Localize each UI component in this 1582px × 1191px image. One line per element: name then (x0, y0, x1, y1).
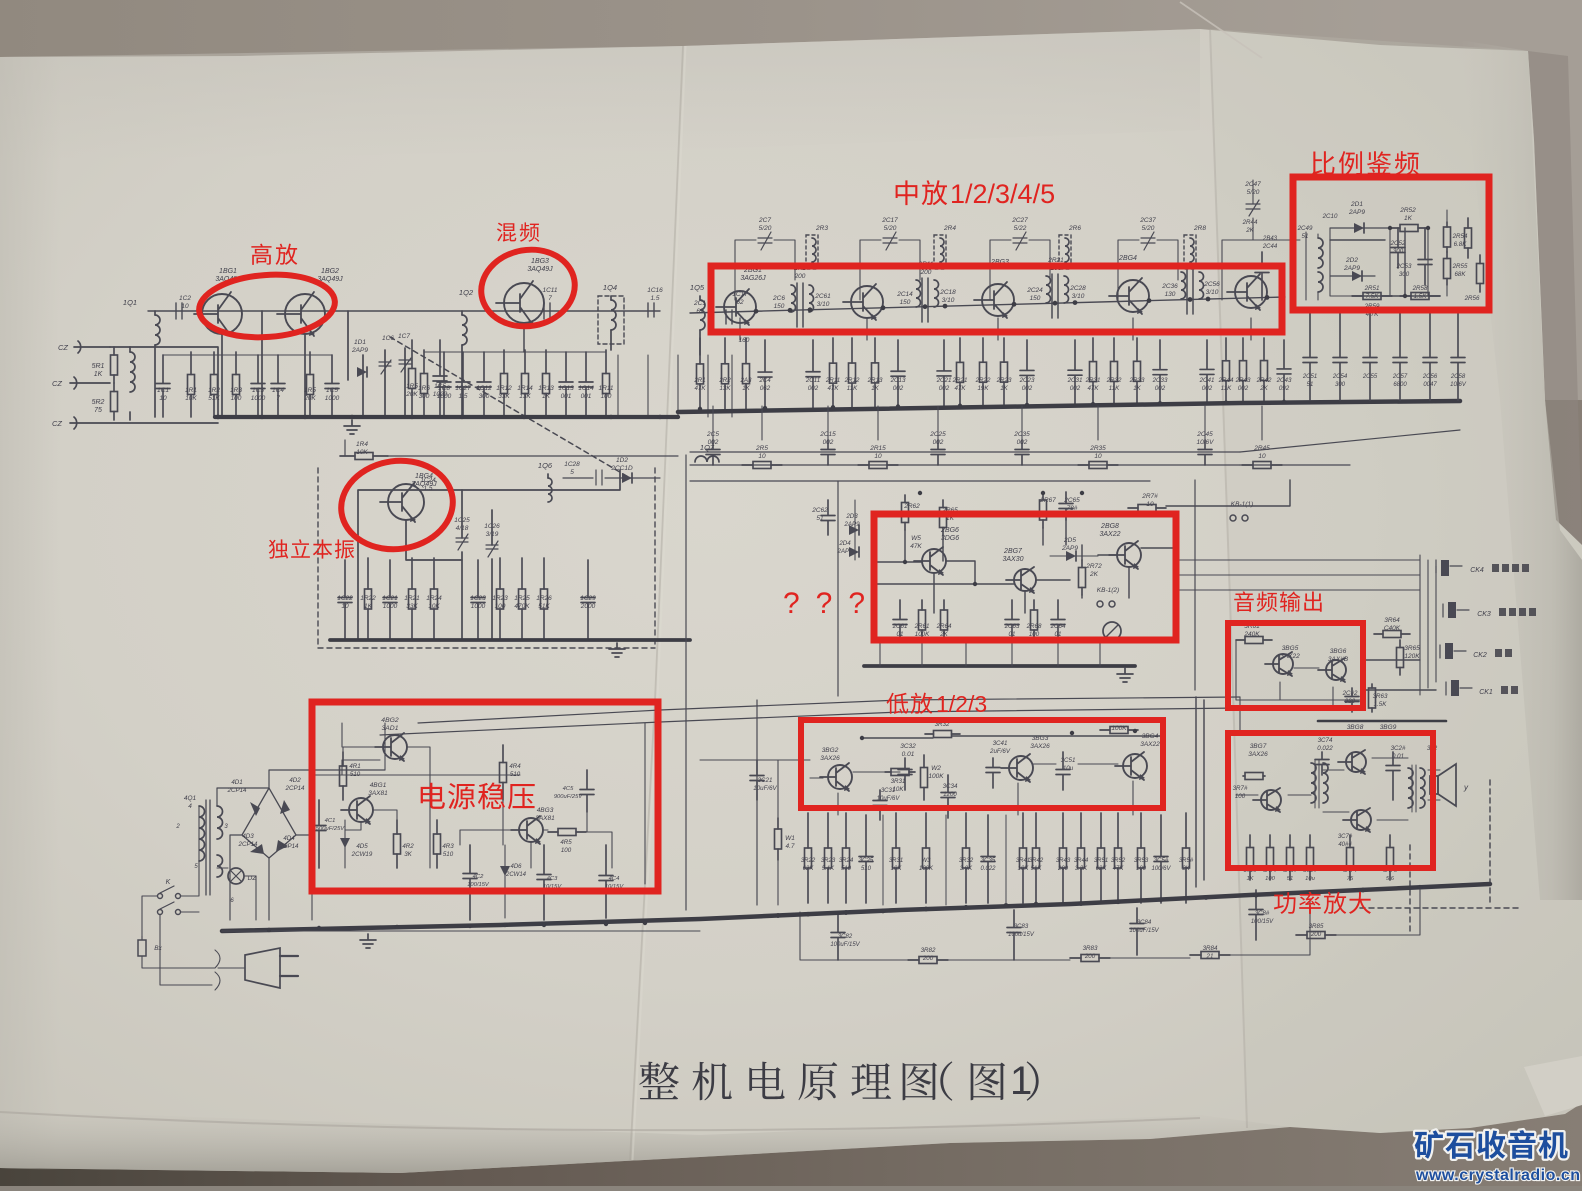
svg-text:10K: 10K (185, 395, 197, 402)
svg-text:001: 001 (581, 393, 592, 400)
svg-text:2C61: 2C61 (892, 623, 908, 630)
svg-text:510: 510 (443, 851, 454, 858)
svg-text:200: 200 (920, 269, 932, 276)
svg-text:1BG4: 1BG4 (415, 473, 433, 480)
svg-text:510: 510 (350, 771, 361, 778)
svg-text:3AX22: 3AX22 (1099, 531, 1120, 538)
svg-text:3BG7: 3BG7 (1250, 743, 1267, 750)
svg-text:001: 001 (561, 393, 572, 400)
svg-text:2CP14: 2CP14 (238, 841, 258, 848)
svg-text:3.9K: 3.9K (960, 866, 973, 872)
svg-text:2R61: 2R61 (914, 623, 930, 630)
svg-text:2R32: 2R32 (1106, 377, 1122, 384)
svg-text:3/10: 3/10 (1072, 293, 1085, 300)
svg-text:3R64: 3R64 (1384, 617, 1400, 624)
svg-text:4D4: 4D4 (283, 835, 295, 842)
svg-text:2R5: 2R5 (755, 445, 768, 452)
svg-text:2C27: 2C27 (1011, 217, 1028, 224)
svg-text:W2: W2 (931, 765, 941, 772)
svg-text:3C74: 3C74 (1318, 737, 1333, 744)
svg-text:0.022: 0.022 (980, 866, 996, 872)
svg-text:1R5: 1R5 (406, 383, 418, 390)
svg-text:10K: 10K (1018, 866, 1030, 872)
svg-text:5: 5 (570, 469, 574, 476)
svg-text:100/15V: 100/15V (1251, 919, 1274, 925)
svg-text:2K: 2K (1181, 866, 1190, 872)
svg-text:11K: 11K (1109, 385, 1120, 392)
svg-text:002: 002 (1022, 385, 1033, 392)
svg-text:1/2/3/4/5: 1/2/3/4/5 (950, 179, 1055, 209)
svg-text:47K: 47K (694, 385, 706, 392)
svg-text:10/6V: 10/6V (1450, 382, 1467, 388)
svg-text:2AP9: 2AP9 (351, 347, 368, 354)
svg-text:3R51: 3R51 (1094, 858, 1108, 864)
svg-text:1C8: 1C8 (438, 385, 450, 392)
svg-text:W1: W1 (785, 835, 795, 842)
svg-text:1C13: 1C13 (558, 385, 574, 392)
svg-text:1C21: 1C21 (382, 595, 398, 602)
svg-text:2R1: 2R1 (693, 377, 705, 384)
svg-text:3AX30: 3AX30 (1002, 556, 1023, 563)
svg-text:002: 002 (1238, 385, 1249, 392)
svg-text:092: 092 (1279, 385, 1290, 392)
svg-text:100K: 100K (928, 773, 944, 780)
svg-text:1C4: 1C4 (272, 387, 284, 394)
svg-text:3.3K: 3.3K (1075, 866, 1088, 872)
svg-text:1: 1 (1010, 1059, 1032, 1103)
svg-text:1R2: 1R2 (208, 387, 220, 394)
svg-text:1/2/3: 1/2/3 (936, 691, 987, 717)
svg-text:4R2: 4R2 (402, 843, 414, 850)
svg-text:10: 10 (758, 453, 766, 460)
svg-text:3C32: 3C32 (900, 743, 916, 750)
svg-text:2R58: 2R58 (1412, 285, 1428, 292)
svg-text:4BG2: 4BG2 (381, 717, 399, 724)
svg-text:2R52: 2R52 (1399, 207, 1416, 214)
svg-text:3BG9: 3BG9 (1380, 724, 1397, 731)
svg-text:5.6: 5.6 (1386, 876, 1395, 882)
svg-text:4BG1: 4BG1 (370, 782, 387, 789)
svg-text:002: 002 (1202, 385, 1213, 392)
svg-text:100: 100 (495, 603, 506, 610)
svg-text:3R53: 3R53 (1134, 858, 1149, 864)
svg-text:002: 002 (808, 385, 819, 392)
svg-text:3C34: 3C34 (943, 783, 958, 790)
svg-text:4BG3: 4BG3 (537, 807, 554, 814)
svg-text:2C58: 2C58 (1450, 374, 1466, 380)
svg-text:4: 4 (188, 803, 192, 810)
svg-text:10u: 10u (1063, 765, 1074, 772)
svg-text:2C13: 2C13 (890, 377, 906, 384)
svg-text:2C44: 2C44 (1262, 244, 1278, 250)
svg-text:CK1: CK1 (1479, 689, 1493, 696)
svg-text:2CW19: 2CW19 (351, 851, 373, 858)
svg-text:2R21: 2R21 (952, 377, 968, 384)
svg-text:47K: 47K (910, 543, 922, 550)
svg-text:4.7: 4.7 (785, 843, 794, 850)
svg-text:13K: 13K (519, 393, 531, 400)
svg-text:4C5: 4C5 (563, 786, 574, 792)
svg-text:3BG6: 3BG6 (1330, 648, 1347, 655)
svg-text:2C57: 2C57 (1392, 374, 1408, 380)
svg-text:1K: 1K (1000, 385, 1008, 392)
svg-text:100uF/15V: 100uF/15V (830, 942, 860, 948)
svg-text:300: 300 (1335, 382, 1346, 388)
svg-text:2C41: 2C41 (1199, 377, 1215, 384)
svg-text:2C1: 2C1 (693, 300, 706, 307)
svg-text:2R2: 2R2 (718, 377, 731, 384)
svg-text:2R4: 2R4 (943, 225, 956, 232)
svg-text:2R11: 2R11 (825, 377, 840, 384)
svg-text:4C1: 4C1 (325, 818, 336, 824)
svg-text:2R62: 2R62 (903, 503, 920, 510)
svg-text:CK4: CK4 (1470, 567, 1484, 574)
svg-text:10K: 10K (891, 866, 903, 872)
svg-text:3R83: 3R83 (1083, 945, 1098, 952)
svg-text:1R24: 1R24 (426, 595, 442, 602)
svg-text:5R2: 5R2 (92, 399, 105, 406)
svg-text:3R43: 3R43 (1056, 858, 1071, 864)
svg-text:2R44: 2R44 (1218, 377, 1234, 384)
svg-text:3BG2: 3BG2 (822, 747, 839, 754)
svg-text:100: 100 (1136, 866, 1147, 872)
svg-text:2R33: 2R33 (1129, 377, 1145, 384)
svg-text:4R4: 4R4 (509, 763, 521, 770)
svg-text:1R11: 1R11 (598, 385, 613, 392)
svg-text:20K: 20K (303, 395, 316, 402)
svg-text:2R44: 2R44 (1242, 219, 1258, 226)
svg-text:33K: 33K (406, 603, 418, 610)
svg-text:10: 10 (159, 395, 167, 402)
svg-text:0.01: 0.01 (902, 751, 915, 758)
svg-text:1D2: 1D2 (616, 457, 628, 464)
svg-text:2C56: 2C56 (1422, 374, 1438, 380)
svg-text:2R72: 2R72 (1085, 563, 1102, 570)
svg-text:CK3: CK3 (1477, 611, 1491, 618)
svg-text:3R32: 3R32 (959, 858, 974, 864)
svg-text:2: 2 (175, 824, 180, 830)
svg-text:1Q4: 1Q4 (603, 283, 617, 292)
svg-text:2C43: 2C43 (1276, 377, 1292, 384)
svg-text:2D1: 2D1 (1350, 201, 1363, 208)
svg-text:200: 200 (1057, 866, 1069, 872)
svg-text:3C31: 3C31 (881, 788, 895, 794)
svg-text:100: 100 (1235, 793, 1246, 800)
svg-text:3AX26: 3AX26 (1030, 743, 1050, 750)
svg-text:2C18: 2C18 (939, 289, 956, 296)
svg-text:2R7#: 2R7# (1141, 493, 1158, 500)
svg-text:2C62: 2C62 (811, 507, 828, 514)
svg-text:1BG1: 1BG1 (219, 268, 237, 275)
svg-text:3/10: 3/10 (817, 301, 830, 308)
svg-text:2K: 2K (1089, 571, 1099, 578)
svg-text:2C6: 2C6 (772, 295, 785, 302)
svg-text:2R15: 2R15 (869, 445, 886, 452)
svg-text:2C10: 2C10 (1322, 213, 1338, 220)
svg-text:51K: 51K (1031, 866, 1043, 872)
svg-text:150: 150 (900, 299, 911, 306)
svg-text:3R52: 3R52 (1111, 858, 1126, 864)
svg-text:4D5: 4D5 (356, 843, 368, 850)
svg-text:1D1: 1D1 (354, 339, 366, 346)
svg-text:062: 062 (760, 385, 771, 392)
svg-text:2C23: 2C23 (1019, 377, 1035, 384)
svg-text:1R26: 1R26 (536, 595, 552, 602)
svg-text:10: 10 (341, 603, 349, 610)
svg-text:3/10: 3/10 (1206, 289, 1219, 296)
svg-text:3R85: 3R85 (1309, 923, 1324, 930)
svg-text:CZ: CZ (52, 419, 62, 428)
svg-text:1Q6: 1Q6 (538, 461, 553, 470)
svg-text:1C16: 1C16 (647, 287, 663, 294)
svg-text:10: 10 (874, 453, 882, 460)
svg-text:100: 100 (601, 393, 612, 400)
svg-text:2C36: 2C36 (1161, 283, 1178, 290)
svg-text:CK2: CK2 (1473, 652, 1487, 659)
svg-text:300: 300 (479, 393, 490, 400)
svg-text:150: 150 (774, 303, 785, 310)
svg-text:150: 150 (1030, 295, 1041, 302)
svg-text:3C2#: 3C2# (1391, 745, 1406, 752)
svg-text:1R25: 1R25 (514, 595, 530, 602)
svg-text:1.5: 1.5 (650, 295, 659, 302)
svg-text:3R31: 3R31 (891, 778, 906, 785)
svg-text:2R42: 2R42 (1256, 377, 1272, 384)
svg-text:2000: 2000 (580, 603, 596, 610)
svg-text:1K: 1K (94, 371, 103, 378)
svg-text:2D2: 2D2 (1345, 257, 1358, 264)
svg-text:3R22: 3R22 (801, 858, 816, 864)
svg-text:2D5: 2D5 (1063, 537, 1076, 544)
svg-text:2D3: 2D3 (845, 513, 858, 520)
svg-text:1000: 1000 (437, 393, 452, 400)
svg-text:3R7#: 3R7# (1233, 785, 1248, 792)
svg-text:1R23: 1R23 (492, 595, 508, 602)
svg-text:1K: 1K (1133, 385, 1141, 392)
svg-text:2C17: 2C17 (881, 217, 898, 224)
svg-text:3C35: 3C35 (981, 858, 996, 864)
svg-text:1C2: 1C2 (179, 295, 191, 302)
svg-text:300: 300 (419, 393, 430, 400)
svg-text:1R13: 1R13 (538, 385, 554, 392)
svg-text:3R65: 3R65 (1404, 645, 1420, 652)
svg-text:11K: 11K (1221, 385, 1232, 392)
svg-text:2AP9: 2AP9 (1348, 209, 1365, 216)
svg-text:3R24: 3R24 (839, 858, 854, 864)
svg-text:5/20: 5/20 (1142, 225, 1155, 232)
svg-text:47K: 47K (827, 385, 839, 392)
svg-text:1Q5: 1Q5 (690, 283, 705, 292)
svg-text:2C49: 2C49 (1297, 225, 1313, 232)
svg-text:1K: 1K (542, 393, 551, 400)
svg-text:100/6V: 100/6V (1151, 866, 1171, 872)
svg-text:1BG2: 1BG2 (321, 268, 339, 275)
svg-text:1R6: 1R6 (418, 385, 430, 392)
svg-text:2C53: 2C53 (1396, 263, 1412, 270)
svg-text:10: 10 (1258, 453, 1266, 460)
svg-text:1K: 1K (1404, 215, 1413, 222)
svg-text:0047: 0047 (1423, 382, 1437, 388)
svg-text:2R51: 2R51 (1364, 285, 1380, 292)
svg-text:1000: 1000 (325, 395, 340, 402)
svg-text:51: 51 (1287, 876, 1293, 882)
svg-text:2C14: 2C14 (896, 291, 913, 298)
svg-text:510: 510 (841, 866, 852, 872)
svg-text:100: 100 (1265, 876, 1275, 882)
svg-text:3AG26J: 3AG26J (740, 275, 766, 282)
svg-text:4R5: 4R5 (560, 839, 572, 846)
svg-text:100: 100 (231, 395, 242, 402)
svg-text:3AD1: 3AD1 (381, 725, 398, 732)
svg-text:13K: 13K (719, 385, 731, 392)
svg-text:1R12: 1R12 (496, 385, 512, 392)
svg-text:100K: 100K (919, 866, 934, 872)
svg-text:www.crystalradio.cn: www.crystalradio.cn (1415, 1167, 1581, 1184)
svg-text:47K: 47K (1087, 385, 1099, 392)
svg-text:2C33: 2C33 (1152, 377, 1168, 384)
svg-text:1K: 1K (871, 385, 879, 392)
svg-text:2CW14: 2CW14 (505, 872, 527, 878)
svg-text:2R3: 2R3 (815, 225, 828, 232)
svg-text:2D4: 2D4 (838, 540, 851, 547)
svg-text:19K: 19K (977, 385, 989, 392)
svg-text:KB-1(2): KB-1(2) (1097, 587, 1119, 594)
svg-text:75: 75 (94, 407, 102, 414)
svg-text:0.022: 0.022 (1317, 745, 1333, 752)
svg-text:2R31: 2R31 (1085, 377, 1101, 384)
svg-text:3/10: 3/10 (942, 297, 955, 304)
svg-text:3R31: 3R31 (889, 858, 903, 864)
svg-text:2C51: 2C51 (1302, 374, 1317, 380)
svg-text:2CP14: 2CP14 (279, 843, 299, 850)
svg-text:5/20: 5/20 (759, 225, 772, 232)
svg-text:2AP9: 2AP9 (1343, 265, 1360, 272)
svg-text:3R82: 3R82 (921, 947, 936, 954)
svg-text:2C21: 2C21 (936, 377, 952, 384)
svg-text:KB-1(1): KB-1(1) (1231, 501, 1253, 508)
svg-text:2R35: 2R35 (1089, 445, 1106, 452)
svg-text:2R6: 2R6 (1068, 225, 1081, 232)
svg-text:4R3: 4R3 (442, 843, 454, 850)
svg-text:CZ: CZ (58, 343, 68, 352)
svg-text:10K: 10K (428, 603, 440, 610)
svg-text:130: 130 (1165, 291, 1176, 298)
svg-text:3R23: 3R23 (821, 858, 836, 864)
svg-text:2R54: 2R54 (1452, 233, 1468, 240)
svg-text:1C3: 1C3 (252, 387, 264, 394)
svg-text:4R1: 4R1 (349, 763, 360, 770)
svg-text:2R43: 2R43 (1235, 377, 1251, 384)
svg-text:2A3: 2A3 (739, 377, 752, 384)
svg-text:4Q1: 4Q1 (184, 795, 197, 802)
svg-text:2K: 2K (1245, 227, 1254, 234)
svg-text:Bx: Bx (154, 945, 162, 952)
svg-text:1C28: 1C28 (564, 461, 580, 468)
svg-text:10u: 10u (1305, 876, 1315, 882)
svg-text:K: K (166, 879, 171, 886)
svg-text:3BG4: 3BG4 (1142, 733, 1159, 740)
svg-text:1R14: 1R14 (517, 385, 533, 392)
svg-text:4D1: 4D1 (231, 779, 242, 786)
svg-text:3C41: 3C41 (993, 740, 1008, 747)
svg-text:1K: 1K (1246, 876, 1254, 882)
svg-text:1K: 1K (742, 385, 750, 392)
svg-text:3BG8: 3BG8 (1347, 724, 1364, 731)
svg-text:20K: 20K (405, 391, 418, 398)
svg-text:2B43: 2B43 (1262, 236, 1278, 242)
svg-text:3AX26: 3AX26 (820, 755, 840, 762)
svg-text:2R13: 2R13 (867, 377, 883, 384)
svg-text:1C14: 1C14 (578, 385, 594, 392)
svg-text:2C54: 2C54 (1332, 374, 1348, 380)
svg-text:002: 002 (1070, 385, 1081, 392)
svg-text:3AX26: 3AX26 (1248, 751, 1268, 758)
svg-text:3C5#: 3C5# (1154, 858, 1169, 864)
svg-text:510: 510 (861, 866, 872, 872)
svg-text:2C37: 2C37 (1139, 217, 1156, 224)
svg-text:3BG5: 3BG5 (1282, 645, 1299, 652)
svg-text:47K: 47K (1113, 866, 1125, 872)
svg-text:2CP14: 2CP14 (285, 785, 305, 792)
svg-text:1000: 1000 (251, 395, 266, 402)
svg-text:1C11: 1C11 (542, 287, 557, 294)
svg-text:2R8: 2R8 (1193, 225, 1206, 232)
svg-text:2C61: 2C61 (814, 293, 831, 300)
svg-text:2C55: 2C55 (1362, 374, 1378, 380)
svg-text:1R21: 1R21 (404, 595, 420, 602)
svg-text:51: 51 (1302, 233, 1309, 240)
svg-text:1C22: 1C22 (337, 595, 353, 602)
svg-text:2BG6: 2BG6 (940, 527, 959, 534)
svg-text:1R3: 1R3 (230, 387, 242, 394)
svg-text:3R44: 3R44 (1074, 858, 1089, 864)
svg-text:62: 62 (696, 308, 704, 315)
svg-text:1R22: 1R22 (360, 595, 376, 602)
svg-text:1R5: 1R5 (304, 387, 316, 394)
svg-text:1C23: 1C23 (470, 595, 486, 602)
svg-text:6800: 6800 (1393, 382, 1407, 388)
svg-text:5/22: 5/22 (1014, 225, 1027, 232)
svg-text:33K: 33K (498, 393, 510, 400)
svg-text:1R4: 1R4 (356, 441, 368, 448)
svg-text:1K: 1K (364, 603, 373, 610)
svg-text:3R42: 3R42 (1029, 858, 1044, 864)
svg-text:2C28: 2C28 (1069, 285, 1086, 292)
svg-text:5/20: 5/20 (884, 225, 897, 232)
svg-text:51K: 51K (538, 603, 550, 610)
svg-text:W5: W5 (911, 535, 921, 542)
svg-text:4D2: 4D2 (289, 777, 301, 784)
svg-text:5.1K: 5.1K (822, 866, 835, 872)
svg-text:2BG8: 2BG8 (1100, 523, 1119, 530)
svg-text:3R5#: 3R5# (1179, 858, 1194, 864)
svg-text:2C24: 2C24 (1026, 287, 1043, 294)
svg-text:2BG7: 2BG7 (1003, 548, 1023, 555)
svg-text:10: 10 (1094, 453, 1102, 460)
svg-text:2CC1D: 2CC1D (610, 465, 633, 472)
svg-text:W3: W3 (922, 858, 932, 864)
svg-text:2C56: 2C56 (1203, 281, 1220, 288)
svg-text:2R64: 2R64 (936, 623, 952, 630)
svg-text:1C1: 1C1 (157, 387, 169, 394)
svg-text:1C5: 1C5 (326, 387, 338, 394)
svg-text:4D6: 4D6 (510, 864, 522, 870)
svg-text:2R23: 2R23 (996, 377, 1012, 384)
svg-text:3AQ49J: 3AQ49J (527, 266, 553, 273)
svg-text:3C25: 3C25 (859, 858, 874, 864)
svg-text:1BG3: 1BG3 (531, 258, 549, 265)
svg-text:2R55: 2R55 (1452, 263, 1468, 270)
